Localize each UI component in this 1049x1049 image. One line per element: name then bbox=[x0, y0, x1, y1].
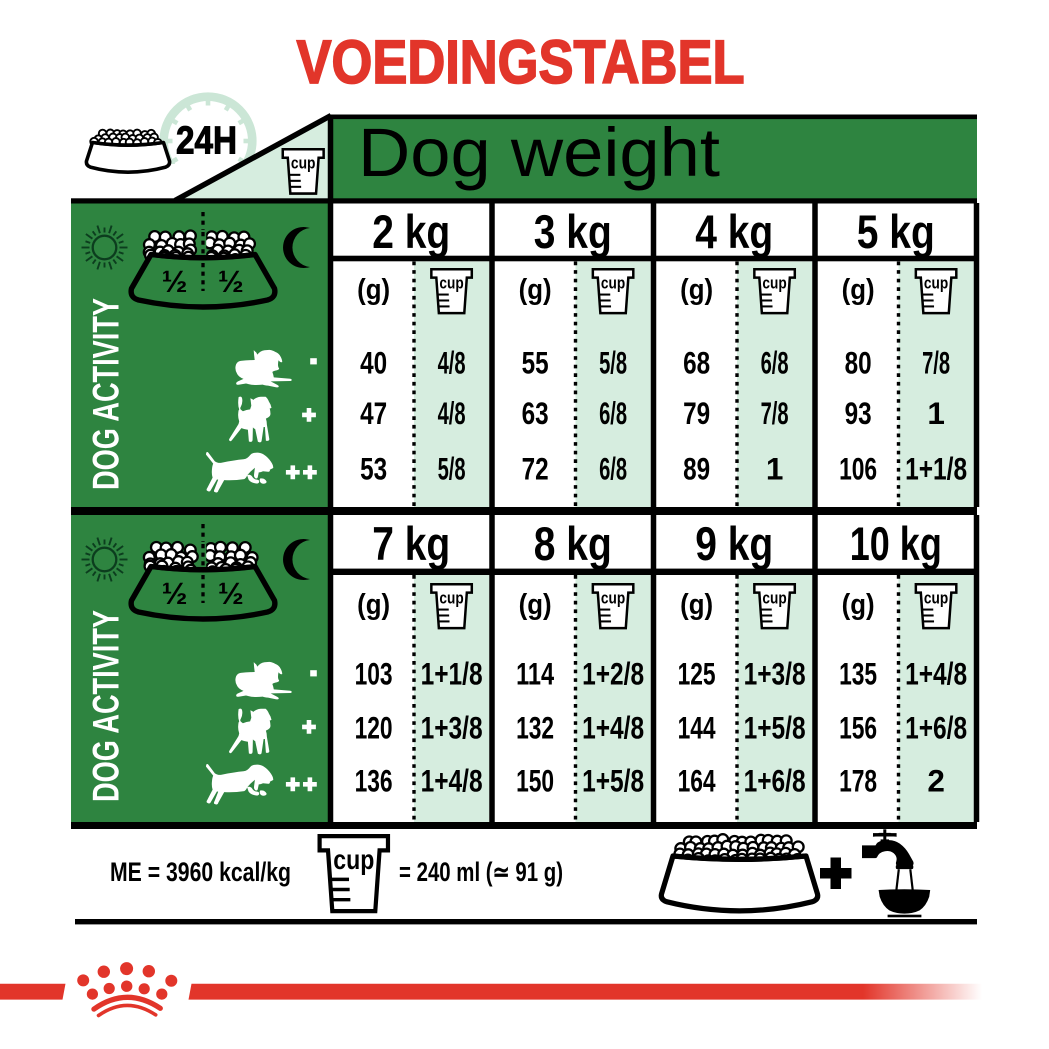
svg-text:(g): (g) bbox=[680, 274, 713, 306]
svg-text:1+4/8: 1+4/8 bbox=[582, 709, 644, 745]
svg-text:½: ½ bbox=[162, 264, 188, 299]
svg-text:5/8: 5/8 bbox=[599, 344, 627, 380]
svg-text:4/8: 4/8 bbox=[438, 395, 466, 431]
svg-text:1+1/8: 1+1/8 bbox=[905, 450, 967, 486]
svg-text:9 kg: 9 kg bbox=[695, 517, 773, 570]
svg-text:106: 106 bbox=[839, 450, 877, 486]
svg-text:Dog weight: Dog weight bbox=[358, 114, 720, 191]
svg-text:5 kg: 5 kg bbox=[857, 205, 935, 258]
svg-text:1+6/8: 1+6/8 bbox=[744, 762, 806, 798]
svg-text:89: 89 bbox=[683, 450, 710, 486]
svg-text:164: 164 bbox=[678, 762, 716, 798]
svg-text:3 kg: 3 kg bbox=[534, 205, 612, 258]
svg-text:1: 1 bbox=[927, 395, 945, 431]
svg-text:178: 178 bbox=[839, 762, 877, 798]
svg-text:120: 120 bbox=[355, 709, 393, 745]
svg-text:53: 53 bbox=[360, 450, 387, 486]
svg-text:6/8: 6/8 bbox=[761, 344, 789, 380]
svg-text:½: ½ bbox=[218, 264, 244, 299]
svg-text:80: 80 bbox=[845, 344, 872, 380]
svg-text:8 kg: 8 kg bbox=[534, 517, 612, 570]
svg-text:= 240 ml (≃ 91 g): = 240 ml (≃ 91 g) bbox=[399, 857, 563, 887]
svg-text:(g): (g) bbox=[357, 589, 390, 621]
svg-text:(g): (g) bbox=[519, 274, 552, 306]
svg-text:7/8: 7/8 bbox=[761, 395, 789, 431]
svg-text:1+1/8: 1+1/8 bbox=[421, 655, 483, 691]
svg-text:79: 79 bbox=[683, 395, 710, 431]
svg-text:5/8: 5/8 bbox=[438, 450, 466, 486]
svg-text:7/8: 7/8 bbox=[922, 344, 950, 380]
svg-text:(g): (g) bbox=[842, 589, 875, 621]
svg-text:55: 55 bbox=[522, 344, 549, 380]
svg-text:1: 1 bbox=[766, 450, 784, 486]
svg-text:ME = 3960 kcal/kg: ME = 3960 kcal/kg bbox=[110, 857, 291, 887]
svg-text:(g): (g) bbox=[519, 589, 552, 621]
svg-text:150: 150 bbox=[516, 762, 554, 798]
svg-text:24H: 24H bbox=[176, 120, 237, 163]
svg-text:2 kg: 2 kg bbox=[372, 205, 450, 258]
svg-text:7 kg: 7 kg bbox=[372, 517, 450, 570]
svg-text:½: ½ bbox=[162, 576, 188, 611]
svg-text:1+3/8: 1+3/8 bbox=[744, 655, 806, 691]
svg-text:10 kg: 10 kg bbox=[850, 517, 942, 570]
svg-text:1+6/8: 1+6/8 bbox=[905, 709, 967, 745]
svg-text:125: 125 bbox=[678, 655, 716, 691]
svg-text:4 kg: 4 kg bbox=[695, 205, 773, 258]
svg-text:(g): (g) bbox=[842, 274, 875, 306]
svg-text:132: 132 bbox=[516, 709, 554, 745]
svg-text:6/8: 6/8 bbox=[599, 450, 627, 486]
svg-text:47: 47 bbox=[360, 395, 387, 431]
svg-text:1+4/8: 1+4/8 bbox=[421, 762, 483, 798]
svg-text:156: 156 bbox=[839, 709, 877, 745]
svg-text:4/8: 4/8 bbox=[438, 344, 466, 380]
svg-text:72: 72 bbox=[522, 450, 549, 486]
svg-text:DOG ACTIVITY: DOG ACTIVITY bbox=[86, 298, 127, 490]
svg-text:144: 144 bbox=[678, 709, 716, 745]
svg-text:136: 136 bbox=[355, 762, 393, 798]
svg-text:63: 63 bbox=[522, 395, 549, 431]
svg-text:VOEDINGSTABEL: VOEDINGSTABEL bbox=[297, 28, 745, 96]
svg-text:1+3/8: 1+3/8 bbox=[421, 709, 483, 745]
svg-text:½: ½ bbox=[218, 576, 244, 611]
svg-text:(g): (g) bbox=[680, 589, 713, 621]
svg-text:68: 68 bbox=[683, 344, 710, 380]
svg-text:6/8: 6/8 bbox=[599, 395, 627, 431]
svg-text:1+2/8: 1+2/8 bbox=[582, 655, 644, 691]
svg-text:(g): (g) bbox=[357, 274, 390, 306]
svg-text:93: 93 bbox=[845, 395, 872, 431]
svg-text:DOG ACTIVITY: DOG ACTIVITY bbox=[86, 610, 127, 802]
svg-text:1+4/8: 1+4/8 bbox=[905, 655, 967, 691]
svg-text:40: 40 bbox=[360, 344, 387, 380]
svg-text:1+5/8: 1+5/8 bbox=[582, 762, 644, 798]
svg-text:2: 2 bbox=[927, 762, 945, 798]
svg-text:103: 103 bbox=[355, 655, 393, 691]
svg-text:114: 114 bbox=[516, 655, 554, 691]
svg-text:1+5/8: 1+5/8 bbox=[744, 709, 806, 745]
svg-text:135: 135 bbox=[839, 655, 877, 691]
